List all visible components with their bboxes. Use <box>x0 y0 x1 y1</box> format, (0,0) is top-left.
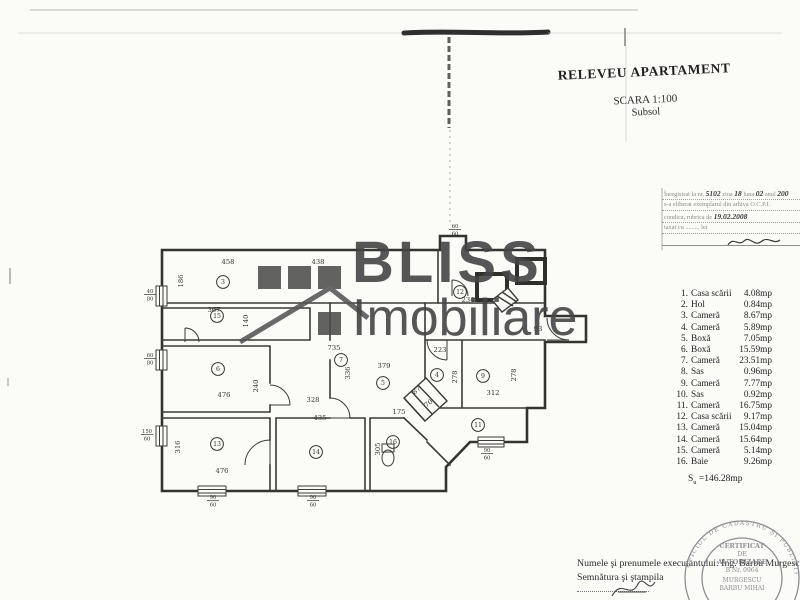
window-label: 90 <box>310 495 317 501</box>
window-label: 60 <box>484 456 491 462</box>
room-number: 4 <box>435 372 439 379</box>
floor-plan: 4584381863671404762403287353363792232783… <box>0 0 800 600</box>
window-label: 80 <box>147 297 154 303</box>
stamp-text-line: DE <box>737 550 747 558</box>
window-label: 60 <box>144 437 151 443</box>
dimension-label: 476 <box>218 391 231 399</box>
window-label: 60 <box>452 224 459 230</box>
window-label: 90 <box>484 448 491 454</box>
dimension-label: 175 <box>393 408 406 416</box>
dimension-label: 336 <box>344 367 352 380</box>
room-number: 14 <box>312 449 320 456</box>
room-number: 13 <box>213 441 221 448</box>
stamp-text-line: CERTIFICAT <box>720 542 765 550</box>
dimension-label: 305 <box>374 443 382 456</box>
dimension-label: 316 <box>174 441 182 454</box>
room-number: 3 <box>221 279 225 286</box>
window-label: 60 <box>310 503 317 509</box>
room-number: 15 <box>213 313 221 320</box>
dimension-label: 186 <box>177 275 185 288</box>
stamp-text-line: BARBU MIHAI <box>719 585 765 592</box>
dimension-label: 278 <box>451 371 459 384</box>
logo-roof-icon <box>240 288 368 342</box>
dimension-label: 278 <box>510 369 518 382</box>
window-label: 150 <box>142 429 152 435</box>
toilet-fixture <box>382 444 394 466</box>
room-number: 11 <box>474 422 482 429</box>
dimension-label: 240 <box>252 380 260 393</box>
window-label: 90 <box>210 495 217 501</box>
scanned-document-page: RELEVEU APARTAMENT SCARA 1:100 Subsol În… <box>0 0 800 600</box>
window-label: 60 <box>452 232 459 238</box>
dimension-label: 379 <box>378 362 391 370</box>
staircase <box>404 288 518 421</box>
window-label: 60 <box>210 503 217 509</box>
dimension-label: 476 <box>216 467 229 475</box>
room-number: 5 <box>381 380 385 387</box>
dimension-label: 312 <box>487 389 500 397</box>
agency-logo <box>238 250 388 360</box>
dimension-label: 328 <box>307 396 320 404</box>
room-number: 16 <box>389 439 397 446</box>
room-number: 12 <box>456 289 464 296</box>
dimension-label: 223 <box>434 346 447 354</box>
room-number: 6 <box>216 366 220 373</box>
stamp-inner-text: CERTIFICATDEAUTORIZAREB Nr. 0964MURGESCU… <box>717 542 767 592</box>
room-number: 9 <box>481 373 485 380</box>
dimension-label: 458 <box>222 258 235 266</box>
stamp-text-line: AUTORIZARE <box>717 558 767 566</box>
footer-signature-squiggle <box>608 572 658 600</box>
window-label: 40 <box>147 289 154 295</box>
stamp-text-line: MURGESCU <box>723 577 762 584</box>
stamp-text-line: B Nr. 0964 <box>726 567 759 574</box>
dimension-label: 93 <box>534 325 543 333</box>
window-label: 80 <box>147 361 154 367</box>
certification-stamp: OFICIUL DE CADASTRU ŞI PUBLICITATE CERTI… <box>652 514 800 600</box>
window-label: 60 <box>147 353 154 359</box>
dimension-label: 435 <box>314 414 327 422</box>
